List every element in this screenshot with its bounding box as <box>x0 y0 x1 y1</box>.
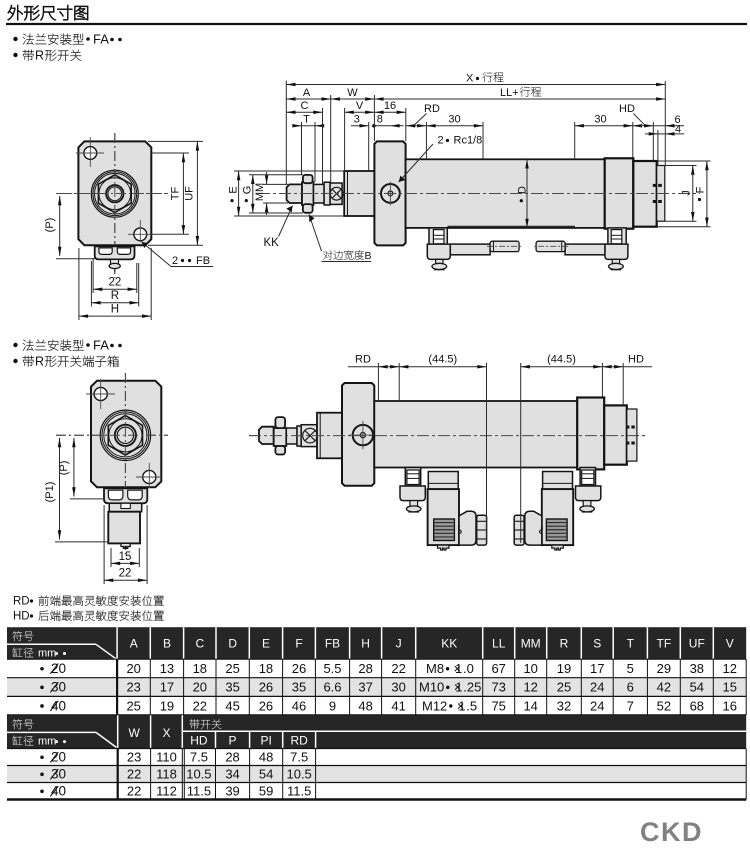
svg-text:1: 1 <box>455 661 462 676</box>
svg-text:2: 2 <box>438 135 444 147</box>
svg-text:CKD: CKD <box>640 817 703 847</box>
svg-text:30: 30 <box>391 680 405 695</box>
svg-text:D: D <box>516 186 528 194</box>
svg-text:45: 45 <box>225 698 239 713</box>
svg-text:30: 30 <box>448 114 460 126</box>
svg-text:22: 22 <box>127 767 141 782</box>
svg-text:23: 23 <box>126 680 140 695</box>
svg-text:RD: RD <box>355 353 371 365</box>
svg-text:14: 14 <box>523 698 537 713</box>
svg-text:20: 20 <box>193 680 207 695</box>
svg-text:HD: HD <box>628 353 644 365</box>
svg-text:41: 41 <box>391 698 405 713</box>
svg-text:FB: FB <box>196 255 210 267</box>
svg-text:18: 18 <box>259 661 273 676</box>
svg-text:7.5: 7.5 <box>190 750 208 765</box>
svg-text:1: 1 <box>455 680 462 695</box>
svg-text:E: E <box>262 637 270 651</box>
svg-text:MM: MM <box>254 183 266 201</box>
svg-text:15: 15 <box>119 551 132 563</box>
svg-text:HD: HD <box>619 103 635 115</box>
svg-text:R: R <box>35 49 44 63</box>
svg-text:25: 25 <box>126 698 140 713</box>
svg-text:mm: mm <box>38 736 56 748</box>
svg-text:22: 22 <box>193 698 207 713</box>
svg-text:.0: .0 <box>463 661 474 676</box>
svg-text:38: 38 <box>690 661 704 676</box>
svg-text:(P1): (P1) <box>44 482 56 503</box>
svg-text:M12: M12 <box>422 698 447 713</box>
svg-text:34: 34 <box>225 767 239 782</box>
svg-text:15: 15 <box>723 680 737 695</box>
svg-text:FA: FA <box>93 32 109 47</box>
svg-text:LL+: LL+ <box>500 87 519 99</box>
svg-text:V: V <box>726 637 734 651</box>
svg-text:(44.5): (44.5) <box>547 353 576 365</box>
svg-text:54: 54 <box>259 767 273 782</box>
svg-text:10.5: 10.5 <box>286 767 311 782</box>
svg-text:J: J <box>680 190 692 196</box>
svg-text:29: 29 <box>657 661 671 676</box>
svg-text:54: 54 <box>690 680 704 695</box>
svg-text:LL: LL <box>492 637 506 651</box>
svg-text:KK: KK <box>441 637 457 651</box>
svg-text:mm: mm <box>38 648 56 660</box>
svg-text:26: 26 <box>292 661 306 676</box>
svg-text:RD: RD <box>290 734 308 748</box>
svg-text:R: R <box>560 637 569 651</box>
svg-text:J: J <box>396 637 402 651</box>
svg-text:59: 59 <box>259 784 273 799</box>
svg-text:11.5: 11.5 <box>287 784 311 799</box>
svg-text:UF: UF <box>689 637 705 651</box>
svg-text:T: T <box>627 637 635 651</box>
svg-text:2: 2 <box>172 255 178 267</box>
svg-text:37: 37 <box>358 680 372 695</box>
svg-text:5.5: 5.5 <box>323 661 341 676</box>
svg-text:39: 39 <box>225 784 239 799</box>
svg-text:25: 25 <box>225 661 239 676</box>
svg-text:FA: FA <box>93 338 109 353</box>
svg-text:HD: HD <box>190 734 208 748</box>
svg-text:TF: TF <box>170 186 182 200</box>
svg-text:35: 35 <box>292 680 306 695</box>
svg-text:6.6: 6.6 <box>323 680 341 695</box>
svg-text:F: F <box>695 186 707 193</box>
svg-text:19: 19 <box>160 698 174 713</box>
svg-text:F: F <box>295 637 302 651</box>
svg-text:22: 22 <box>391 661 405 676</box>
svg-text:13: 13 <box>160 661 174 676</box>
svg-text:M8: M8 <box>426 661 444 676</box>
svg-text:22: 22 <box>127 784 141 799</box>
svg-text:12: 12 <box>723 661 737 676</box>
svg-text:FB: FB <box>325 637 340 651</box>
svg-text:4: 4 <box>675 123 681 135</box>
svg-text:B: B <box>163 637 171 651</box>
svg-text:48: 48 <box>259 750 273 765</box>
svg-text:5: 5 <box>627 661 634 676</box>
svg-text:22: 22 <box>109 277 122 289</box>
svg-text:68: 68 <box>690 698 704 713</box>
svg-text:20: 20 <box>51 750 66 765</box>
svg-text:X: X <box>466 72 474 84</box>
svg-text:40: 40 <box>51 784 66 799</box>
svg-text:Rc1/8: Rc1/8 <box>454 135 483 147</box>
svg-text:H: H <box>111 304 119 316</box>
svg-text:24: 24 <box>590 680 604 695</box>
svg-text:V: V <box>356 100 364 112</box>
svg-text:A: A <box>130 637 138 651</box>
svg-text:T: T <box>303 114 310 126</box>
svg-text:73: 73 <box>491 680 505 695</box>
svg-text:28: 28 <box>225 750 239 765</box>
svg-text:26: 26 <box>259 680 273 695</box>
svg-text:M10: M10 <box>419 680 444 695</box>
svg-text:D: D <box>228 637 237 651</box>
svg-text:W: W <box>128 726 140 740</box>
svg-text:HD: HD <box>13 611 30 623</box>
svg-text:11.5: 11.5 <box>187 784 211 799</box>
svg-text:.25: .25 <box>463 680 481 695</box>
svg-text:10.5: 10.5 <box>186 767 211 782</box>
svg-text:KK: KK <box>264 237 280 249</box>
svg-text:16: 16 <box>384 100 396 112</box>
svg-text:S: S <box>593 637 601 651</box>
svg-text:18: 18 <box>193 661 207 676</box>
svg-text:32: 32 <box>557 698 571 713</box>
svg-text:67: 67 <box>491 661 505 676</box>
svg-text:46: 46 <box>292 698 306 713</box>
svg-text:MM: MM <box>521 637 541 651</box>
svg-text:C: C <box>301 100 309 112</box>
svg-text:17: 17 <box>590 661 604 676</box>
svg-text:(P): (P) <box>44 218 56 233</box>
svg-text:8: 8 <box>377 114 383 126</box>
svg-text:B: B <box>365 250 372 262</box>
svg-text:12: 12 <box>523 680 537 695</box>
svg-text:7: 7 <box>627 698 634 713</box>
svg-text:40: 40 <box>51 698 66 713</box>
svg-text:110: 110 <box>156 750 177 765</box>
svg-text:19: 19 <box>557 661 571 676</box>
svg-text:30: 30 <box>594 114 606 126</box>
svg-text:(44.5): (44.5) <box>428 353 457 365</box>
svg-text:25: 25 <box>557 680 571 695</box>
svg-text:PI: PI <box>260 734 271 748</box>
svg-text:R: R <box>111 290 119 302</box>
svg-text:23: 23 <box>127 750 141 765</box>
svg-text:42: 42 <box>657 680 671 695</box>
svg-text:7.5: 7.5 <box>290 750 308 765</box>
svg-text:17: 17 <box>160 680 174 695</box>
svg-text:.5: .5 <box>466 698 477 713</box>
svg-text:30: 30 <box>51 680 66 695</box>
svg-text:9: 9 <box>329 698 336 713</box>
svg-text:28: 28 <box>358 661 372 676</box>
svg-text:TF: TF <box>657 637 672 651</box>
svg-text:1: 1 <box>458 698 465 713</box>
svg-text:G: G <box>242 186 254 195</box>
svg-text:X: X <box>162 726 170 740</box>
svg-text:20: 20 <box>126 661 140 676</box>
svg-text:20: 20 <box>51 661 66 676</box>
svg-text:118: 118 <box>156 767 177 782</box>
svg-text:RD: RD <box>13 596 30 608</box>
svg-text:52: 52 <box>657 698 671 713</box>
svg-text:C: C <box>195 637 204 651</box>
svg-text:30: 30 <box>51 767 66 782</box>
svg-text:A: A <box>303 87 311 99</box>
svg-text:W: W <box>347 87 358 99</box>
svg-text:10: 10 <box>523 661 537 676</box>
svg-text:6: 6 <box>627 680 634 695</box>
svg-text:16: 16 <box>723 698 737 713</box>
svg-text:48: 48 <box>358 698 372 713</box>
svg-text:H: H <box>361 637 370 651</box>
svg-text:22: 22 <box>119 568 132 580</box>
svg-text:26: 26 <box>259 698 273 713</box>
svg-text:E: E <box>227 186 239 193</box>
svg-text:75: 75 <box>491 698 505 713</box>
svg-text:35: 35 <box>225 680 239 695</box>
svg-text:112: 112 <box>156 784 177 799</box>
svg-text:UF: UF <box>184 186 196 201</box>
svg-text:3: 3 <box>354 114 360 126</box>
svg-text:24: 24 <box>590 698 604 713</box>
svg-text:R: R <box>35 355 44 369</box>
svg-text:P: P <box>229 734 237 748</box>
